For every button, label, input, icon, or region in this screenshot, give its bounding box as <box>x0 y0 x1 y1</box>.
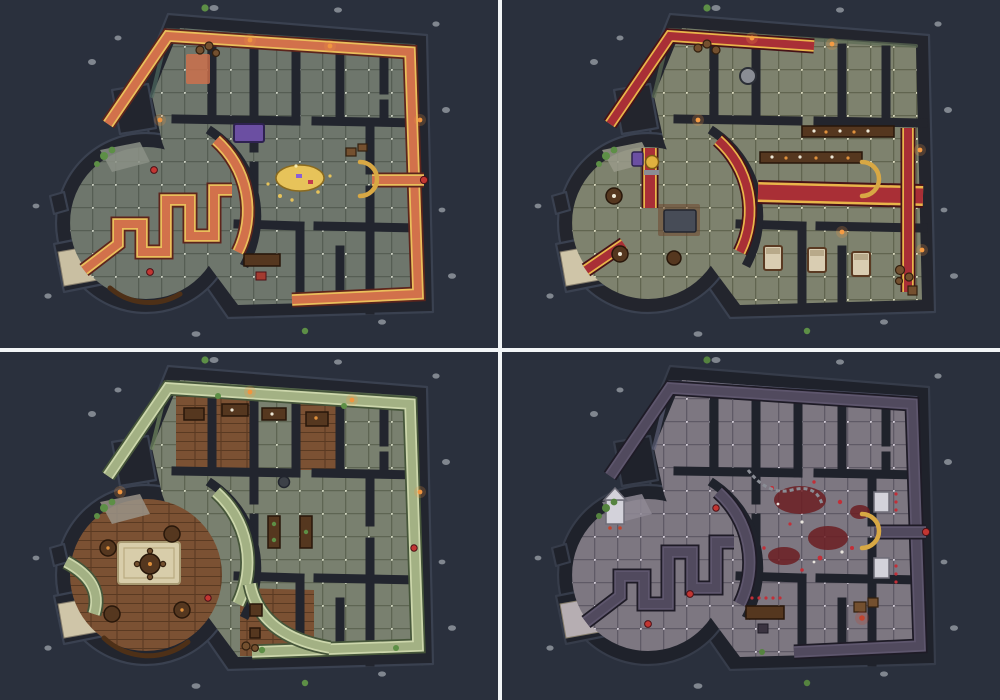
purple-bed <box>234 124 264 142</box>
desk <box>746 606 784 619</box>
battle-map-red <box>502 0 1000 348</box>
map-panel-top-right <box>502 0 1000 348</box>
dark-table <box>664 210 696 232</box>
round-stove <box>740 68 756 84</box>
battle-map-dark <box>502 352 1000 700</box>
statue-alcove-north <box>874 492 889 512</box>
map-panel-bottom-left <box>0 352 498 700</box>
battle-map-orange <box>0 0 498 348</box>
golden-statue <box>646 156 659 169</box>
battle-map-green <box>0 352 498 700</box>
fountain <box>279 477 290 488</box>
statue-alcove-south <box>874 558 889 578</box>
map-panel-top-left <box>0 0 498 348</box>
map-panel-bottom-right <box>502 352 1000 700</box>
map-grid <box>0 0 1000 700</box>
